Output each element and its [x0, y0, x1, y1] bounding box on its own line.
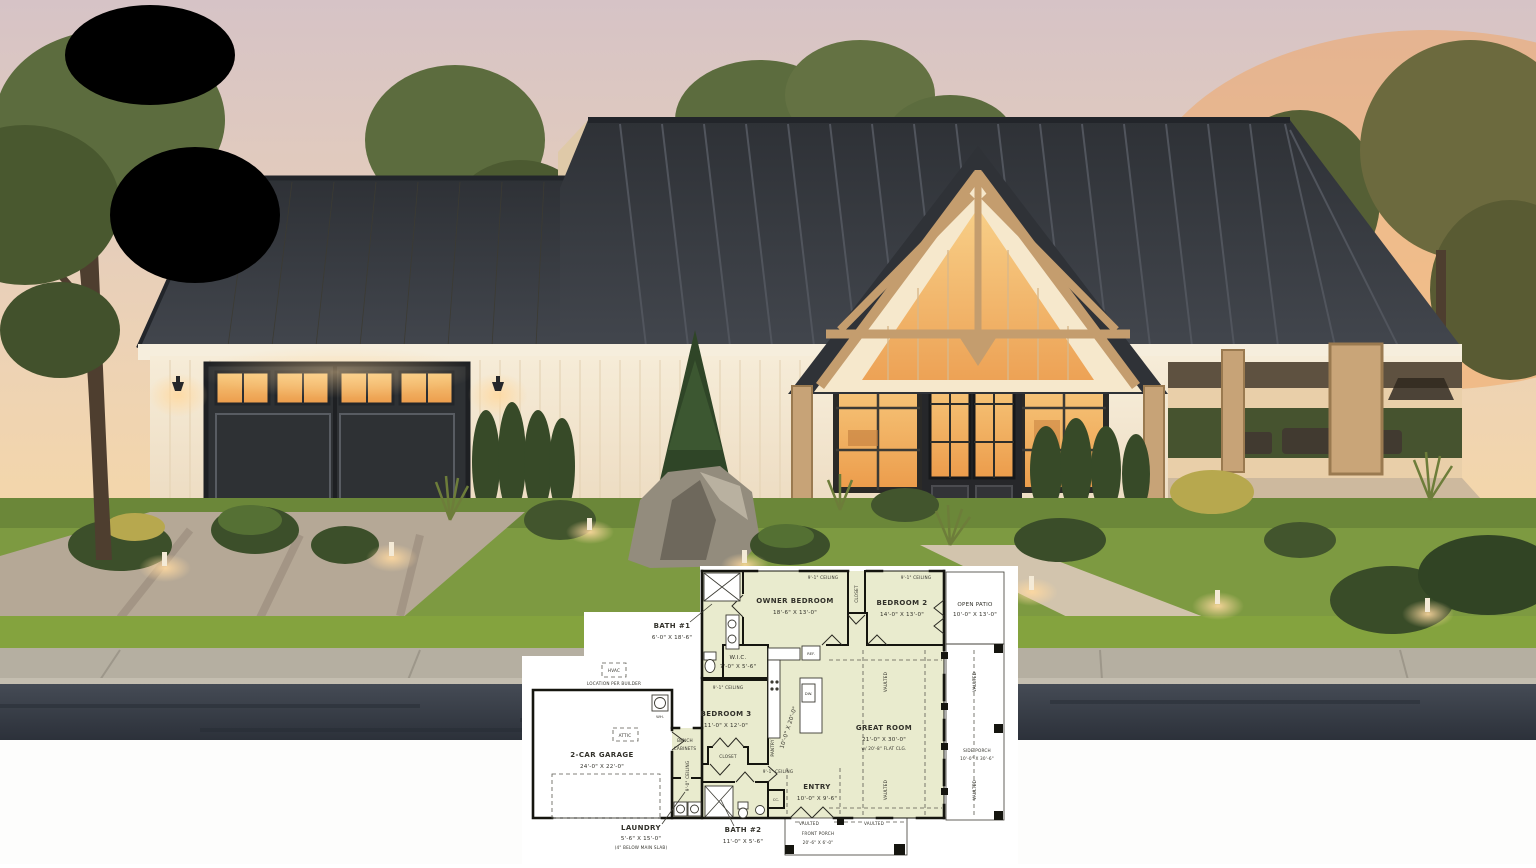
owner-bedroom-dims: 18'-6" X 13'-0": [773, 610, 817, 616]
great-room-note: w/ 20'-8" FLAT CLG.: [862, 746, 907, 751]
attic-label: ATTIC: [619, 733, 632, 738]
open-patio-dims: 10'-0" X 13'-0": [953, 612, 997, 618]
bath1-dims: 6'-0" X 18'-6": [652, 635, 692, 641]
ceiling-note-hall: 9'-1" CEILING: [763, 769, 794, 774]
wall-sconce-left: [148, 373, 208, 417]
porch-ceiling-shadow: [1168, 362, 1462, 388]
bath1-label: BATH #1: [654, 622, 691, 630]
entry-label: ENTRY: [803, 783, 831, 791]
great-room-label: GREAT ROOM: [856, 724, 912, 732]
garage-light-pool: [197, 346, 477, 398]
bedroom3-label: BEDROOM 3: [700, 710, 751, 718]
cabinets-label: CABINETS: [674, 746, 697, 751]
porch-column-large: [1330, 344, 1382, 474]
entry-dims: 10'-0" X 9'-6": [797, 796, 837, 802]
vaulted-great-top: VAULTED: [883, 672, 888, 692]
side-porch-dims: 10'-0" X 30'-6": [960, 756, 994, 761]
pantry-label: PANTRY: [770, 739, 775, 756]
wic-dims: 7'-0" X 5'-6": [720, 664, 757, 670]
front-porch-label: FRONT PORCH: [802, 831, 834, 836]
open-patio-label: OPEN PATIO: [957, 602, 993, 608]
vaulted-porch-bottom: VAULTED: [972, 780, 977, 800]
bedroom3-dims: 11'-0" X 12'-0": [704, 723, 748, 729]
bench-label: BENCH: [677, 738, 693, 743]
laundry-dims: 5'-6" X 15'-0": [621, 836, 661, 842]
front-porch-vaulted: VAULTED: [799, 821, 819, 826]
hvac-note: LOCATION PER BUILDER: [587, 681, 641, 686]
porch-column-small: [1222, 350, 1244, 472]
cc-label: CC.: [773, 797, 780, 802]
wic-label: W.I.C.: [730, 655, 747, 661]
vaulted-great-bottom: VAULTED: [883, 780, 888, 800]
garage-dims: 24'-0" X 22'-0": [580, 764, 624, 770]
bath2-label: BATH #2: [725, 826, 762, 834]
front-porch-vaulted-2: VAULTED: [864, 821, 884, 826]
bedroom2-dims: 14'-0" X 13'-0": [880, 612, 924, 618]
bath2-dims: 11'-0" X 5'-6": [723, 839, 763, 845]
side-porch-label: SIDE PORCH: [963, 748, 991, 753]
closet-label-vertical: CLOSET: [854, 585, 859, 603]
laundry-label: LAUNDRY: [621, 824, 661, 832]
laundry-note: (4" BELOW MAIN SLAB): [615, 845, 668, 850]
ceiling-note-owner: 9'-1" CEILING: [808, 575, 839, 580]
garage-label: 2-CAR GARAGE: [570, 751, 633, 759]
ceiling-note-bedroom3: 9'-1" CEILING: [713, 685, 744, 690]
ceiling-note-bedroom2: 9'-1" CEILING: [901, 575, 932, 580]
bedroom2-label: BEDROOM 2: [876, 599, 927, 607]
floorplan-svg: OWNER BEDROOM 18'-6" X 13'-0" BEDROOM 2 …: [522, 560, 1018, 864]
closet-label-bedroom3: CLOSET: [719, 754, 737, 759]
owner-bedroom-label: OWNER BEDROOM: [756, 597, 834, 605]
ref-label: REF.: [807, 651, 815, 656]
hvac-label: HVAC: [608, 668, 620, 673]
ceiling-note-mudhall: 9'-0" CEILING: [685, 761, 690, 792]
great-room-dims: 21'-0" X 30'-0": [862, 737, 906, 743]
dw-label: DW.: [805, 691, 812, 696]
front-porch-dims: 20'-6" X 6'-0": [803, 840, 834, 845]
vaulted-porch-top: VAULTED: [972, 672, 977, 692]
floorplan-inset: OWNER BEDROOM 18'-6" X 13'-0" BEDROOM 2 …: [522, 560, 1018, 864]
wh-label: WH.: [656, 714, 664, 719]
